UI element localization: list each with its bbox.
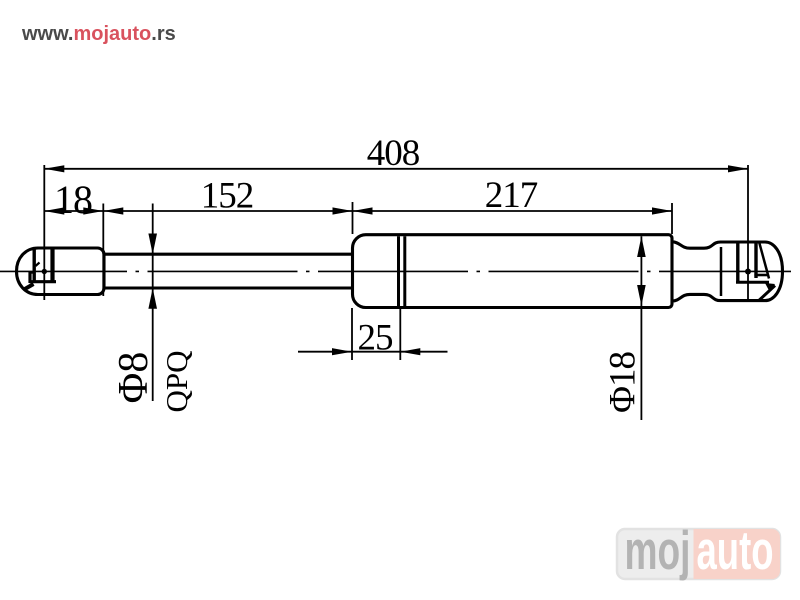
svg-text:25: 25	[358, 318, 394, 359]
svg-text:217: 217	[485, 175, 538, 216]
svg-text:QPQ: QPQ	[159, 350, 194, 412]
svg-text:18: 18	[54, 177, 92, 222]
svg-text:moj: moj	[625, 519, 691, 581]
svg-text:www.mojauto.rs: www.mojauto.rs	[21, 23, 176, 45]
svg-text:auto: auto	[697, 519, 774, 581]
svg-text:Φ8: Φ8	[111, 352, 157, 404]
svg-text:152: 152	[201, 176, 254, 217]
svg-text:Φ18: Φ18	[602, 351, 643, 413]
svg-text:408: 408	[367, 133, 420, 174]
